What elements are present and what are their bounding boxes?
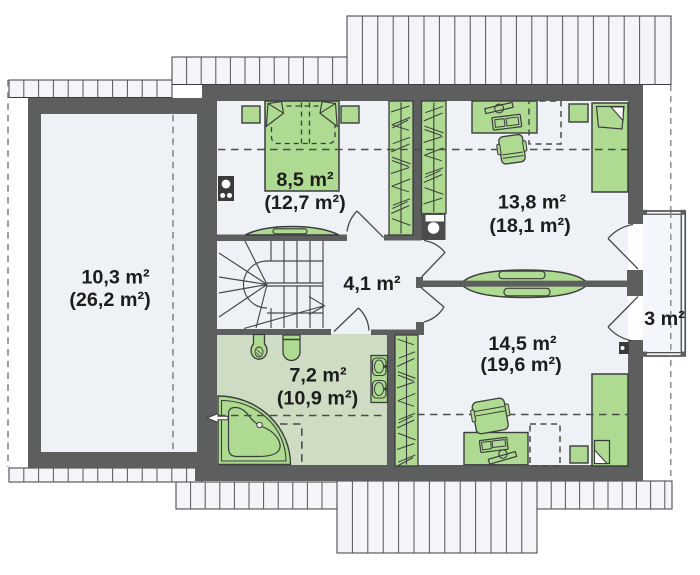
svg-text:14,5 m²: 14,5 m² (488, 333, 557, 355)
svg-text:(12,7 m²): (12,7 m²) (264, 192, 345, 214)
svg-text:(19,6 m²): (19,6 m²) (480, 354, 561, 376)
svg-text:4,1 m²: 4,1 m² (343, 273, 401, 295)
svg-text:(18,1 m²): (18,1 m²) (489, 215, 570, 237)
svg-text:(26,2 m²): (26,2 m²) (69, 289, 150, 311)
svg-text:7,2 m²: 7,2 m² (289, 365, 347, 387)
svg-text:10,3 m²: 10,3 m² (81, 266, 150, 288)
svg-text:(10,9 m²): (10,9 m²) (277, 388, 358, 410)
svg-text:13,8 m²: 13,8 m² (498, 192, 567, 214)
svg-text:3 m²: 3 m² (644, 308, 685, 330)
svg-text:8,5 m²: 8,5 m² (276, 169, 334, 191)
